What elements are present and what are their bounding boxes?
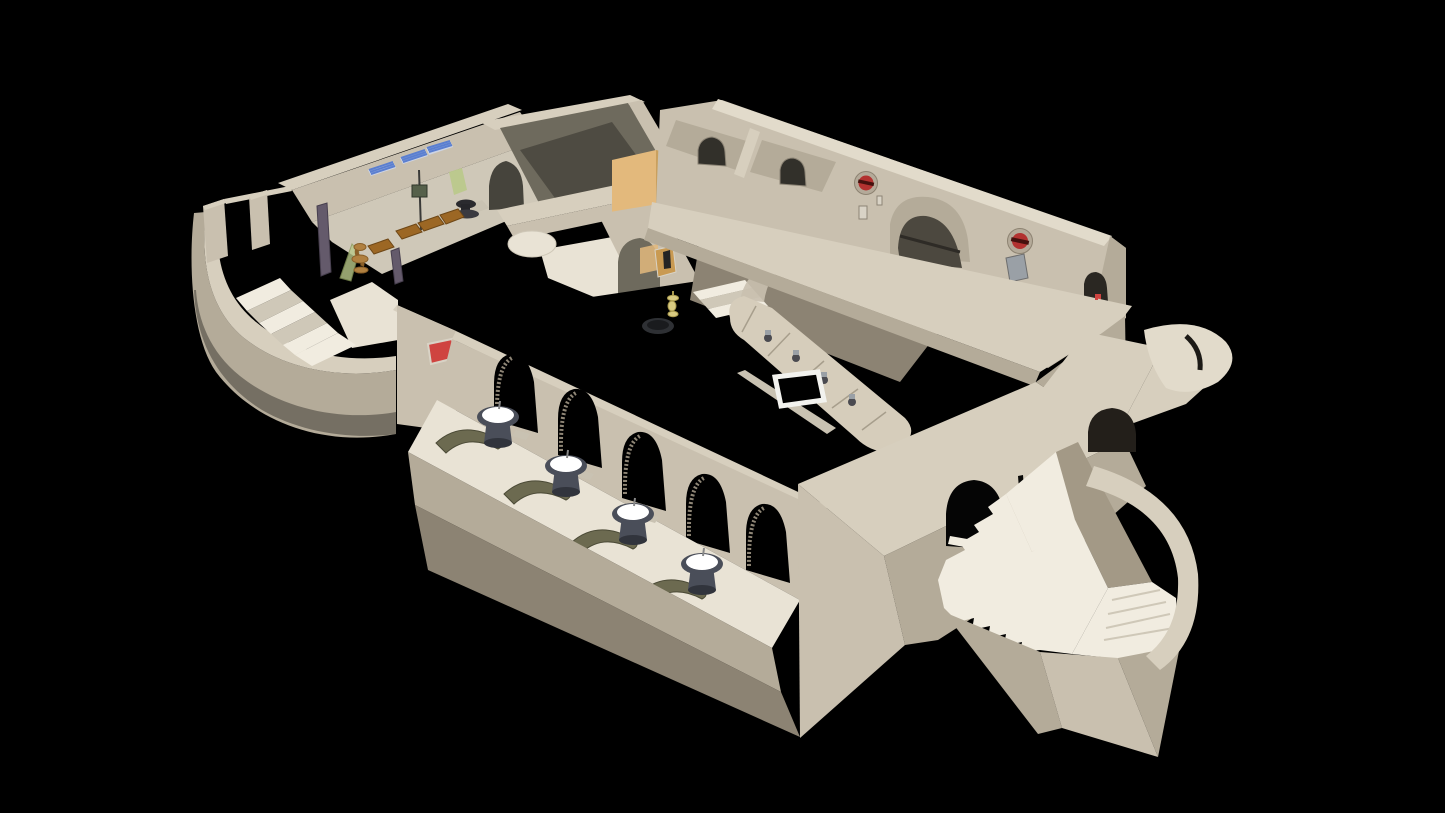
table-antenna [499,401,500,409]
red-vent [1008,229,1033,254]
tap-top [849,394,855,399]
table-top [550,456,582,472]
wall-panel [859,206,867,219]
black-pot-inner [647,320,669,330]
render-stage [0,0,1445,813]
table-antenna [634,498,635,506]
bronze-part [354,244,366,251]
tap-top [821,372,827,377]
tap-top [765,330,771,335]
red-vent [855,172,878,195]
square-floor-light [775,372,824,406]
table-antenna [703,548,704,556]
tap [764,334,772,342]
tap-top [793,350,799,355]
tap [848,398,856,406]
tiny-red-marker [1095,294,1098,300]
hookah-part [668,311,678,317]
hookah-part [668,295,679,301]
3d-viewport[interactable] [0,0,1445,813]
table-foot [552,487,580,497]
bronze-sculpture [352,244,368,274]
table-top [482,407,514,423]
dome-top [508,231,556,257]
table-foot [619,535,647,545]
table-foot [484,438,512,448]
niche-object [663,250,671,269]
bronze-part [354,267,368,273]
bronze-part [352,255,368,263]
metal-plate [1006,254,1028,282]
wall-device [412,185,427,197]
table-top [617,504,649,520]
wall-plaque [877,196,882,205]
hookah-part [668,301,676,311]
tap [792,354,800,362]
table-top [686,554,718,570]
orange-inner-wall [640,244,658,274]
table-foot [688,585,716,595]
table-antenna [567,450,568,458]
